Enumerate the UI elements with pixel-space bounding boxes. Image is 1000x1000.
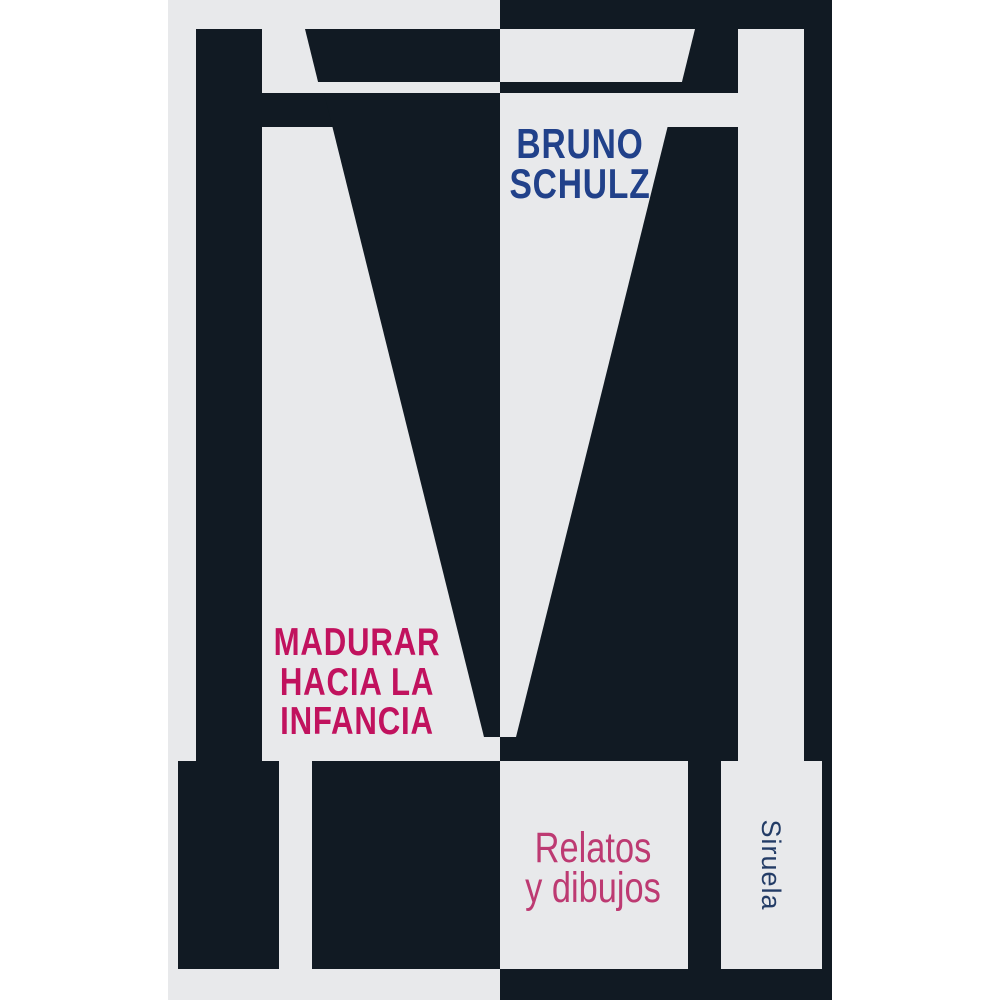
title-line-1: MADURAR [261, 623, 453, 663]
m-left-diagonal-top-dark [305, 29, 500, 82]
author-line-1: BRUNO [484, 124, 676, 164]
subtitle-line-2: y dibujos [497, 868, 689, 908]
author-line-2: SCHULZ [484, 164, 676, 204]
publisher-name: Siruela [755, 795, 787, 935]
m-right-stem-light [738, 29, 804, 762]
title-line-3: INFANCIA [261, 702, 453, 742]
book-title: MADURAR HACIA LA INFANCIA [237, 623, 477, 742]
m-right-diagonal-top-light [500, 29, 695, 82]
page-background: BRUNO SCHULZ MADURAR HACIA LA INFANCIA R… [0, 0, 1000, 1000]
bottom-key-block-left-2 [312, 761, 500, 969]
bottom-key-block-left-1 [178, 761, 279, 969]
subtitle-line-1: Relatos [497, 828, 689, 868]
title-line-2: HACIA LA [261, 663, 453, 703]
book-subtitle: Relatos y dibujos [473, 828, 713, 908]
author-name: BRUNO SCHULZ [460, 124, 700, 204]
